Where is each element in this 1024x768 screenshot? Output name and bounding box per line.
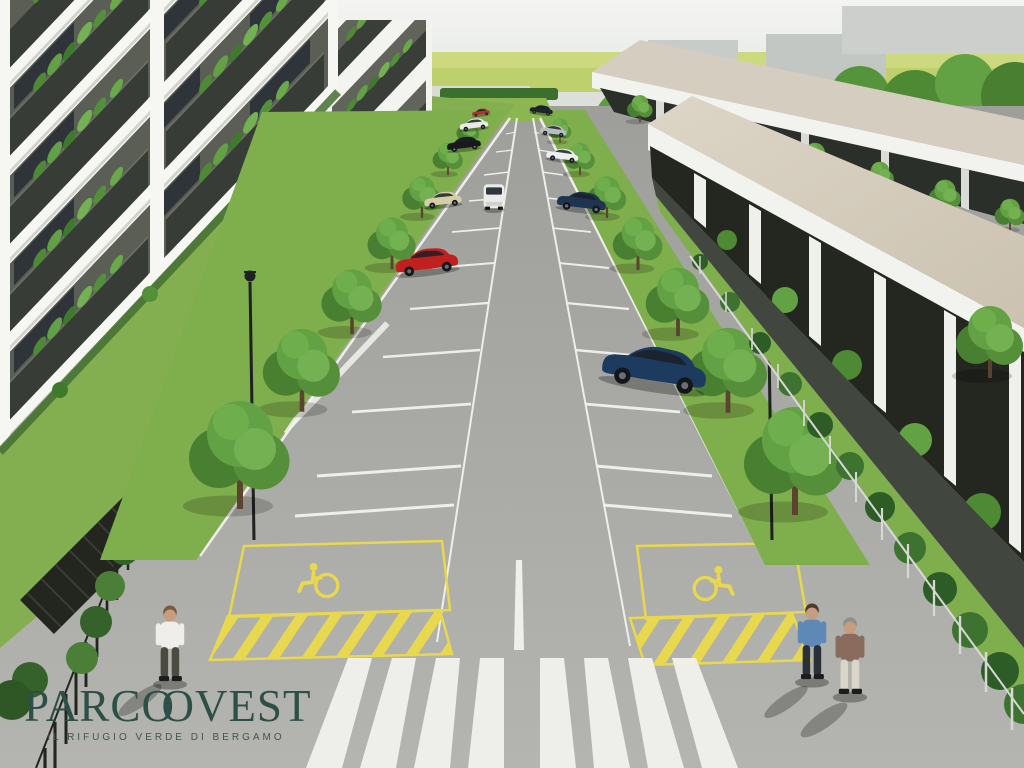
render-canvas: PARCOOVEST IL RIFUGIO VERDE DI BERGAMO [0,0,1024,768]
logo-tagline: IL RIFUGIO VERDE DI BERGAMO [24,732,308,743]
logo-wordmark: PARCOOVEST [24,684,308,729]
vehicle-white-van [484,184,505,213]
scene-svg [0,0,1024,768]
logo: PARCOOVEST IL RIFUGIO VERDE DI BERGAMO [24,684,308,743]
logo-suffix: VEST [195,681,312,731]
logo-o2: O [161,681,195,731]
logo-prefix: PARC [24,681,141,731]
